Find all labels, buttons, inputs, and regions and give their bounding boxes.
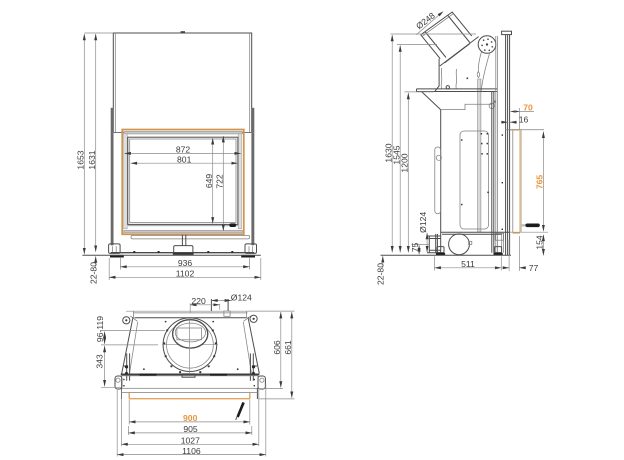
svg-text:900: 900: [183, 413, 198, 423]
svg-text:154: 154: [535, 235, 545, 250]
svg-text:1102: 1102: [176, 269, 195, 279]
svg-text:511: 511: [461, 259, 475, 269]
svg-text:872: 872: [176, 145, 191, 155]
svg-text:1653: 1653: [76, 150, 86, 169]
svg-text:1027: 1027: [181, 436, 200, 446]
svg-text:801: 801: [177, 155, 192, 165]
svg-text:70: 70: [523, 102, 533, 112]
svg-text:Ø124: Ø124: [418, 212, 428, 233]
svg-text:649: 649: [204, 174, 214, 189]
svg-text:96-119: 96-119: [95, 316, 105, 342]
svg-text:77: 77: [529, 263, 539, 273]
svg-text:606: 606: [272, 340, 282, 355]
svg-text:765: 765: [535, 175, 545, 190]
svg-text:1200: 1200: [400, 153, 410, 172]
svg-text:220: 220: [191, 296, 206, 306]
svg-text:Ø124: Ø124: [231, 293, 252, 303]
svg-text:905: 905: [183, 424, 198, 434]
svg-text:936: 936: [178, 258, 193, 268]
svg-text:1631: 1631: [87, 150, 97, 169]
svg-text:343: 343: [95, 354, 105, 369]
svg-text:75: 75: [410, 242, 420, 252]
svg-text:22-80: 22-80: [89, 262, 99, 284]
svg-text:722: 722: [214, 174, 224, 189]
svg-text:22-80: 22-80: [376, 263, 386, 285]
svg-text:1106: 1106: [182, 446, 201, 456]
svg-text:661: 661: [283, 340, 293, 355]
svg-text:16: 16: [519, 115, 529, 125]
